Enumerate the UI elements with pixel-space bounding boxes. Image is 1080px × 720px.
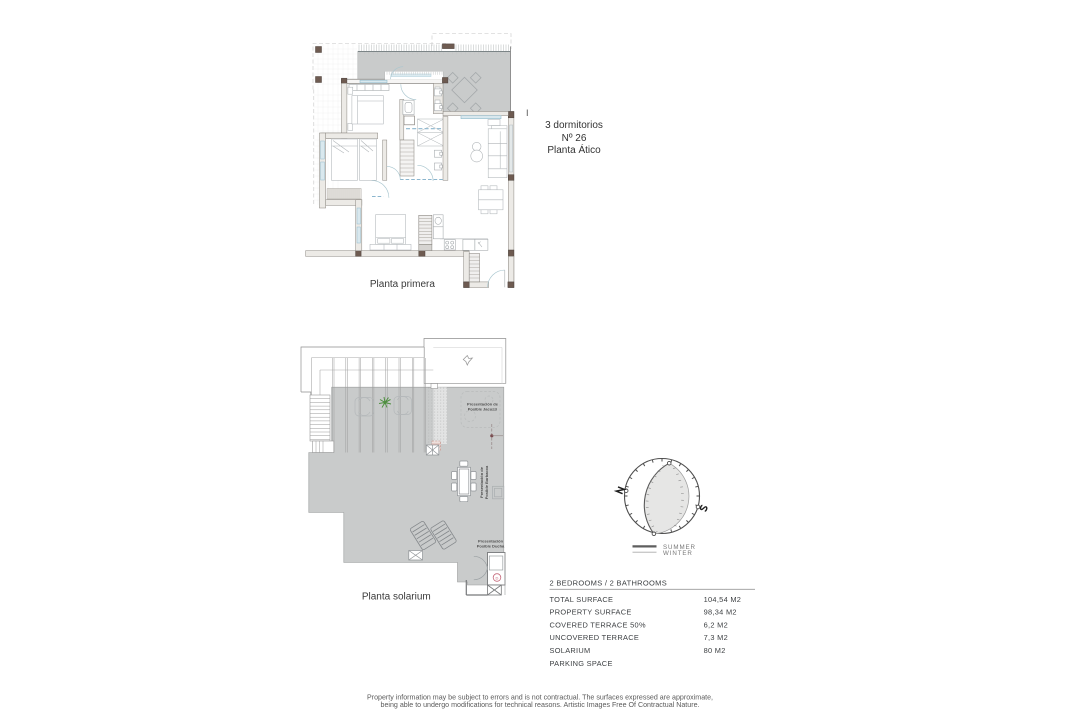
svg-text:SOLARIUM: SOLARIUM — [550, 646, 591, 655]
svg-text:COVERED TERRACE 50%: COVERED TERRACE 50% — [550, 620, 646, 629]
svg-text:104,54 M2: 104,54 M2 — [704, 595, 742, 604]
svg-text:Posible Jacuzzi: Posible Jacuzzi — [468, 407, 498, 412]
svg-text:Planta primera: Planta primera — [370, 279, 435, 290]
svg-text:UNCOVERED TERRACE: UNCOVERED TERRACE — [550, 633, 640, 642]
svg-text:3 dormitorios: 3 dormitorios — [545, 120, 603, 131]
svg-text:7,3 M2: 7,3 M2 — [704, 633, 728, 642]
svg-text:being able to undergo modifica: being able to undergo modifications for … — [381, 701, 700, 709]
svg-text:WINTER: WINTER — [663, 550, 693, 557]
svg-text:Presentación de: Presentación de — [479, 466, 484, 498]
svg-text:D: D — [496, 575, 499, 580]
svg-text:98,34 M2: 98,34 M2 — [704, 608, 737, 617]
svg-text:Posible Barbacoa: Posible Barbacoa — [484, 465, 489, 499]
svg-text:6,2 M2: 6,2 M2 — [704, 620, 728, 629]
svg-text:Planta solarium: Planta solarium — [362, 592, 431, 603]
svg-text:Nº 26: Nº 26 — [562, 133, 587, 144]
svg-text:PROPERTY SURFACE: PROPERTY SURFACE — [550, 608, 632, 617]
svg-text:PARKING SPACE: PARKING SPACE — [550, 659, 613, 668]
svg-text:TOTAL SURFACE: TOTAL SURFACE — [550, 595, 614, 604]
svg-text:Posible Ducha: Posible Ducha — [477, 544, 505, 549]
svg-text:Planta Ático: Planta Ático — [547, 143, 601, 156]
svg-text:2 BEDROOMS / 2 BATHROOMS: 2 BEDROOMS / 2 BATHROOMS — [550, 579, 668, 588]
svg-text:80 M2: 80 M2 — [704, 646, 726, 655]
